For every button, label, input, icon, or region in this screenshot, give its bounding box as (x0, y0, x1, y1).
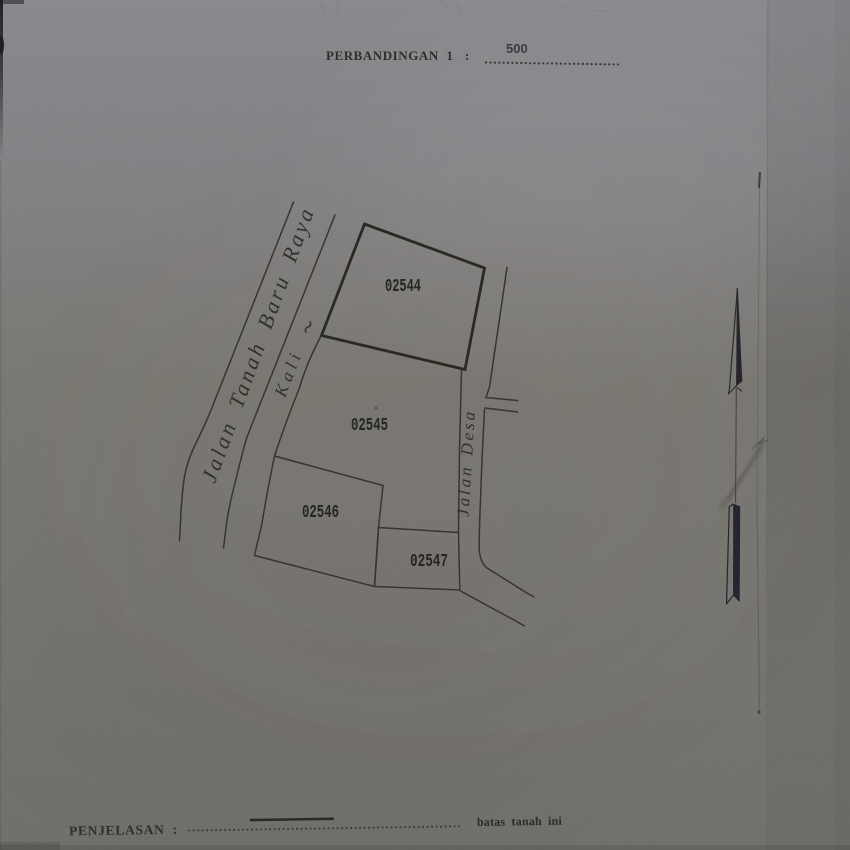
svg-text:500: 500 (506, 41, 528, 56)
svg-text:02544: 02544 (385, 277, 421, 297)
svg-text:02545: 02545 (351, 416, 388, 436)
svg-text:PERBANDINGAN 1 :: PERBANDINGAN 1 : (326, 48, 470, 63)
svg-text:batas tanah ini: batas tanah ini (477, 814, 563, 829)
svg-text:02547: 02547 (410, 552, 448, 572)
svg-text:02546: 02546 (302, 503, 339, 523)
svg-text:PENJELASAN :: PENJELASAN : (69, 822, 178, 839)
